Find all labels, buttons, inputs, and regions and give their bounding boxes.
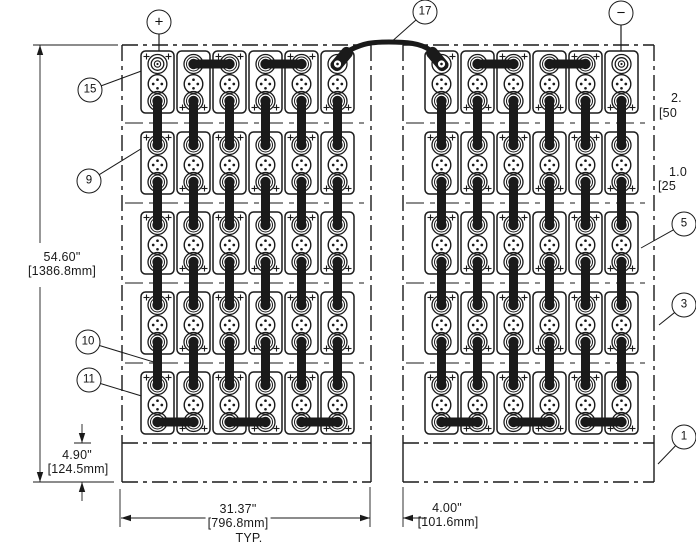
callout-11: 11 (77, 368, 102, 393)
dim-right-mid-inches: 1.0 (669, 166, 687, 179)
callout-15: 15 (78, 78, 103, 103)
negative-terminal-symbol: − (609, 1, 634, 26)
dim-bank-width-inches: 31.37" (220, 503, 257, 516)
dim-gap-width-inches: 4.00" (432, 502, 462, 515)
dim-bank-width-note: TYP. (236, 532, 263, 545)
callout-17: 17 (413, 0, 438, 25)
dim-base-height-inches: 4.90" (62, 449, 92, 462)
dim-gap-width-mm: [101.6mm] (418, 516, 479, 529)
dim-base-height-mm: [124.5mm] (48, 463, 109, 476)
positive-terminal-symbol: + (147, 10, 172, 35)
callout-3: 3 (672, 293, 696, 318)
dim-bank-width-mm: [796.8mm] (206, 517, 271, 530)
callout-10: 10 (76, 330, 101, 355)
dim-right-top-mm: [50 (659, 107, 677, 120)
dim-overall-height-inches: 54.60" (44, 251, 81, 264)
callout-9: 9 (77, 169, 102, 194)
callout-5: 5 (672, 212, 696, 237)
callout-1: 1 (672, 425, 696, 450)
battery-bank-drawing: + − 17 15 9 10 11 5 3 1 54.60" [1386.8mm… (0, 0, 696, 556)
dim-overall-height-mm: [1386.8mm] (28, 265, 96, 278)
dim-right-mid-mm: [25 (658, 180, 676, 193)
dim-right-top-inches: 2. (671, 92, 682, 105)
